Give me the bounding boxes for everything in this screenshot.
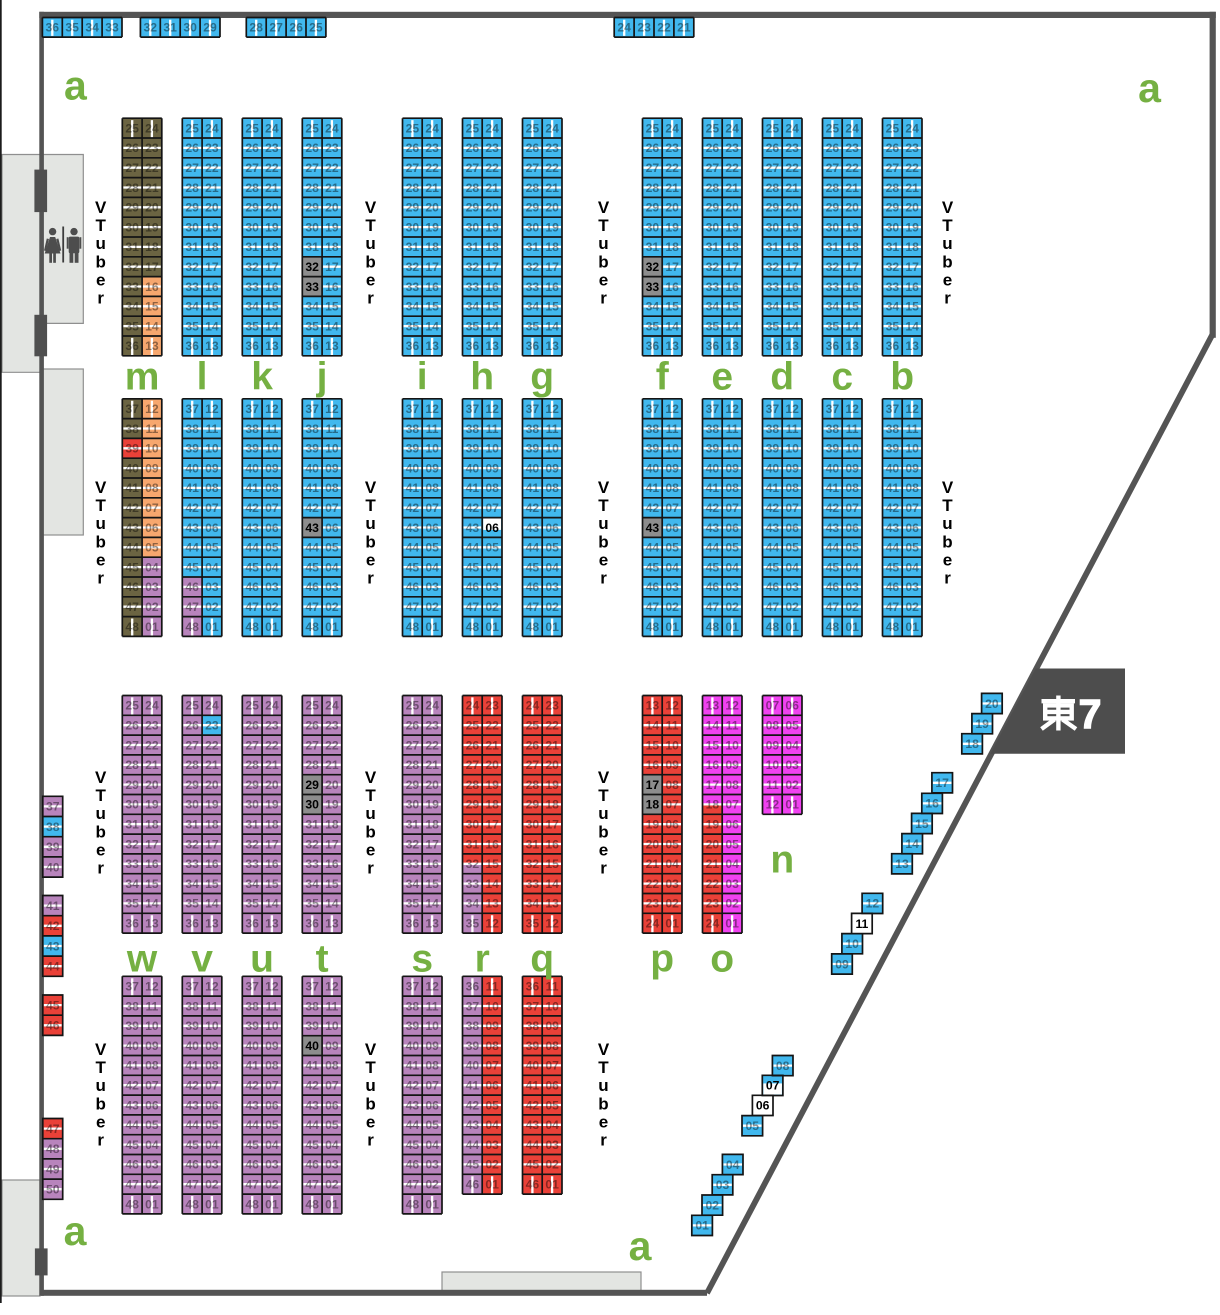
svg-text:19: 19 — [785, 220, 799, 234]
svg-text:25: 25 — [185, 121, 199, 135]
svg-text:28: 28 — [125, 758, 139, 772]
svg-text:32: 32 — [886, 260, 900, 274]
svg-text:14: 14 — [265, 897, 279, 911]
svg-text:22: 22 — [785, 161, 799, 175]
svg-text:33: 33 — [305, 280, 319, 294]
svg-text:20: 20 — [905, 201, 919, 215]
svg-text:06: 06 — [905, 521, 919, 535]
svg-text:16: 16 — [145, 280, 159, 294]
svg-text:37: 37 — [245, 980, 259, 994]
svg-text:24: 24 — [646, 917, 660, 931]
svg-text:28: 28 — [826, 181, 840, 195]
svg-text:20: 20 — [665, 201, 679, 215]
svg-text:04: 04 — [545, 560, 559, 574]
svg-text:06: 06 — [265, 1098, 279, 1112]
svg-text:r: r — [475, 937, 490, 980]
svg-text:43: 43 — [245, 1098, 259, 1112]
svg-text:V: V — [95, 1040, 107, 1059]
svg-text:13: 13 — [545, 339, 559, 353]
svg-text:02: 02 — [425, 1178, 439, 1192]
svg-text:24: 24 — [845, 121, 859, 135]
svg-text:44: 44 — [466, 541, 480, 555]
svg-text:47: 47 — [646, 600, 660, 614]
svg-text:09: 09 — [425, 461, 439, 475]
svg-text:45: 45 — [526, 560, 540, 574]
svg-text:V: V — [942, 478, 954, 497]
svg-text:31: 31 — [245, 240, 259, 254]
svg-text:12: 12 — [905, 402, 919, 416]
svg-text:44: 44 — [526, 1138, 540, 1152]
svg-text:19: 19 — [905, 220, 919, 234]
svg-text:35: 35 — [245, 897, 259, 911]
svg-text:44: 44 — [826, 541, 840, 555]
svg-text:48: 48 — [245, 620, 259, 634]
svg-text:09: 09 — [665, 461, 679, 475]
svg-text:28: 28 — [526, 778, 540, 792]
svg-text:42: 42 — [646, 501, 660, 515]
svg-text:13: 13 — [845, 339, 859, 353]
svg-text:25: 25 — [526, 121, 540, 135]
svg-text:19: 19 — [845, 220, 859, 234]
svg-text:48: 48 — [886, 620, 900, 634]
svg-text:30: 30 — [706, 220, 720, 234]
svg-text:u: u — [942, 514, 952, 533]
svg-text:38: 38 — [125, 999, 139, 1013]
svg-text:37: 37 — [305, 402, 319, 416]
svg-text:e: e — [96, 550, 105, 569]
svg-text:15: 15 — [485, 857, 499, 871]
svg-text:03: 03 — [665, 580, 679, 594]
svg-text:21: 21 — [265, 181, 279, 195]
svg-text:48: 48 — [185, 1197, 199, 1211]
svg-text:06: 06 — [725, 818, 739, 832]
svg-text:17: 17 — [425, 260, 439, 274]
svg-text:d: d — [770, 356, 794, 399]
svg-text:39: 39 — [646, 442, 660, 456]
svg-text:c: c — [831, 356, 853, 399]
svg-text:26: 26 — [305, 719, 319, 733]
svg-text:16: 16 — [205, 857, 219, 871]
svg-text:16: 16 — [485, 280, 499, 294]
svg-text:17: 17 — [325, 837, 339, 851]
svg-text:34: 34 — [185, 877, 199, 891]
svg-text:11: 11 — [906, 422, 919, 436]
svg-text:35: 35 — [185, 897, 199, 911]
svg-text:11: 11 — [145, 999, 158, 1013]
svg-text:T: T — [598, 786, 609, 805]
svg-text:23: 23 — [665, 141, 679, 155]
svg-text:05: 05 — [545, 541, 559, 555]
svg-text:06: 06 — [145, 521, 159, 535]
svg-text:28: 28 — [886, 181, 900, 195]
svg-text:23: 23 — [205, 719, 219, 733]
svg-text:u: u — [365, 514, 375, 533]
svg-text:01: 01 — [665, 620, 679, 634]
svg-text:17: 17 — [845, 260, 859, 274]
svg-text:33: 33 — [526, 280, 540, 294]
svg-text:21: 21 — [485, 738, 499, 752]
svg-text:42: 42 — [125, 501, 139, 515]
svg-text:32: 32 — [826, 260, 840, 274]
svg-text:48: 48 — [646, 620, 660, 634]
svg-text:24: 24 — [545, 121, 559, 135]
svg-text:43: 43 — [706, 521, 720, 535]
svg-text:34: 34 — [826, 300, 840, 314]
svg-text:01: 01 — [265, 1197, 279, 1211]
svg-text:13: 13 — [706, 699, 720, 713]
svg-text:43: 43 — [466, 1118, 480, 1132]
svg-text:02: 02 — [785, 778, 799, 792]
svg-text:42: 42 — [245, 501, 259, 515]
svg-text:46: 46 — [466, 1178, 480, 1192]
svg-text:07: 07 — [545, 501, 559, 515]
svg-text:e: e — [599, 1112, 608, 1131]
svg-text:40: 40 — [245, 1039, 259, 1053]
svg-text:05: 05 — [265, 541, 279, 555]
svg-text:09: 09 — [205, 461, 219, 475]
svg-text:40: 40 — [125, 1039, 139, 1053]
svg-text:42: 42 — [406, 501, 420, 515]
svg-text:20: 20 — [205, 201, 219, 215]
svg-text:40: 40 — [406, 1039, 420, 1053]
svg-text:02: 02 — [725, 600, 739, 614]
svg-text:45: 45 — [245, 1138, 259, 1152]
svg-text:04: 04 — [725, 560, 739, 574]
svg-text:r: r — [367, 289, 374, 308]
svg-text:11: 11 — [486, 980, 499, 994]
svg-text:12: 12 — [866, 897, 880, 911]
svg-text:V: V — [365, 198, 377, 217]
svg-text:06: 06 — [756, 1099, 770, 1113]
svg-text:26: 26 — [826, 141, 840, 155]
svg-text:34: 34 — [125, 300, 139, 314]
svg-text:41: 41 — [526, 481, 540, 495]
svg-text:18: 18 — [325, 240, 339, 254]
svg-text:24: 24 — [425, 699, 439, 713]
svg-text:08: 08 — [545, 481, 559, 495]
svg-text:37: 37 — [466, 402, 480, 416]
svg-text:24: 24 — [905, 121, 919, 135]
svg-text:05: 05 — [665, 541, 679, 555]
svg-text:29: 29 — [185, 778, 199, 792]
svg-text:35: 35 — [886, 319, 900, 333]
svg-text:42: 42 — [305, 1079, 319, 1093]
svg-text:11: 11 — [546, 980, 559, 994]
svg-text:22: 22 — [265, 161, 279, 175]
svg-text:28: 28 — [245, 758, 259, 772]
svg-text:48: 48 — [406, 1197, 420, 1211]
svg-text:09: 09 — [665, 758, 679, 772]
svg-text:45: 45 — [125, 560, 139, 574]
svg-text:28: 28 — [406, 758, 420, 772]
svg-text:25: 25 — [466, 719, 480, 733]
svg-text:09: 09 — [725, 758, 739, 772]
svg-text:27: 27 — [466, 161, 480, 175]
svg-text:17: 17 — [545, 818, 559, 832]
svg-text:07: 07 — [265, 501, 279, 515]
svg-text:05: 05 — [905, 541, 919, 555]
svg-text:46: 46 — [826, 580, 840, 594]
svg-text:23: 23 — [145, 719, 159, 733]
svg-text:26: 26 — [526, 738, 540, 752]
svg-text:a: a — [1138, 65, 1162, 111]
svg-text:07: 07 — [485, 501, 499, 515]
svg-text:25: 25 — [406, 121, 420, 135]
svg-text:29: 29 — [305, 201, 319, 215]
svg-text:47: 47 — [826, 600, 840, 614]
svg-text:23: 23 — [145, 141, 159, 155]
svg-text:27: 27 — [305, 161, 319, 175]
svg-text:19: 19 — [485, 778, 499, 792]
svg-text:11: 11 — [426, 422, 439, 436]
svg-text:05: 05 — [205, 541, 219, 555]
svg-text:28: 28 — [466, 778, 480, 792]
svg-text:23: 23 — [485, 699, 499, 713]
svg-text:16: 16 — [425, 857, 439, 871]
svg-text:26: 26 — [125, 719, 139, 733]
svg-text:21: 21 — [545, 181, 559, 195]
svg-text:46: 46 — [245, 1158, 259, 1172]
svg-text:39: 39 — [466, 442, 480, 456]
svg-text:26: 26 — [406, 719, 420, 733]
svg-text:30: 30 — [766, 220, 780, 234]
svg-text:26: 26 — [185, 719, 199, 733]
svg-text:43: 43 — [826, 521, 840, 535]
svg-text:V: V — [598, 1040, 610, 1059]
svg-text:36: 36 — [766, 339, 780, 353]
svg-text:04: 04 — [325, 560, 339, 574]
svg-text:05: 05 — [665, 837, 679, 851]
svg-text:21: 21 — [425, 181, 439, 195]
svg-text:01: 01 — [325, 620, 339, 634]
svg-text:34: 34 — [406, 300, 420, 314]
svg-text:31: 31 — [245, 818, 259, 832]
svg-text:06: 06 — [665, 521, 679, 535]
svg-text:41: 41 — [466, 481, 480, 495]
svg-text:17: 17 — [905, 260, 919, 274]
svg-text:11: 11 — [726, 719, 739, 733]
svg-text:46: 46 — [406, 1158, 420, 1172]
svg-text:39: 39 — [706, 442, 720, 456]
svg-text:06: 06 — [205, 1098, 219, 1112]
svg-text:r: r — [367, 569, 374, 588]
svg-text:44: 44 — [46, 960, 60, 974]
svg-text:04: 04 — [145, 1138, 159, 1152]
svg-text:14: 14 — [145, 897, 159, 911]
svg-text:05: 05 — [725, 541, 739, 555]
svg-text:21: 21 — [646, 857, 660, 871]
svg-text:V: V — [95, 478, 107, 497]
svg-text:15: 15 — [725, 300, 739, 314]
svg-text:40: 40 — [466, 1059, 480, 1073]
svg-text:01: 01 — [145, 1197, 159, 1211]
svg-text:24: 24 — [485, 121, 499, 135]
svg-text:06: 06 — [485, 521, 499, 535]
svg-text:36: 36 — [826, 339, 840, 353]
svg-text:15: 15 — [265, 300, 279, 314]
svg-text:19: 19 — [325, 798, 339, 812]
svg-text:10: 10 — [325, 442, 339, 456]
svg-text:34: 34 — [466, 897, 480, 911]
svg-text:05: 05 — [205, 1118, 219, 1132]
svg-text:36: 36 — [706, 339, 720, 353]
svg-text:37: 37 — [46, 800, 60, 814]
svg-text:36: 36 — [466, 339, 480, 353]
svg-text:18: 18 — [325, 818, 339, 832]
svg-text:34: 34 — [706, 300, 720, 314]
svg-text:18: 18 — [965, 737, 979, 751]
svg-text:20: 20 — [485, 758, 499, 772]
svg-text:42: 42 — [125, 1079, 139, 1093]
svg-text:01: 01 — [485, 1178, 499, 1192]
svg-text:r: r — [600, 289, 607, 308]
svg-text:48: 48 — [125, 620, 139, 634]
svg-text:44: 44 — [305, 1118, 319, 1132]
svg-text:04: 04 — [485, 1118, 499, 1132]
svg-text:43: 43 — [125, 521, 139, 535]
svg-text:o: o — [710, 937, 734, 980]
svg-text:30: 30 — [406, 798, 420, 812]
svg-text:e: e — [599, 270, 608, 289]
svg-text:20: 20 — [145, 201, 159, 215]
svg-text:36: 36 — [185, 917, 199, 931]
svg-text:22: 22 — [485, 161, 499, 175]
svg-text:43: 43 — [185, 1098, 199, 1112]
svg-text:09: 09 — [725, 461, 739, 475]
svg-text:28: 28 — [466, 181, 480, 195]
svg-text:12: 12 — [665, 402, 679, 416]
svg-text:23: 23 — [905, 141, 919, 155]
svg-text:27: 27 — [646, 161, 660, 175]
svg-text:18: 18 — [205, 818, 219, 832]
svg-text:e: e — [96, 840, 105, 859]
svg-text:36: 36 — [185, 339, 199, 353]
svg-text:47: 47 — [125, 600, 139, 614]
svg-text:14: 14 — [205, 897, 219, 911]
svg-text:11: 11 — [666, 719, 679, 733]
svg-text:v: v — [191, 937, 213, 980]
svg-text:30: 30 — [466, 220, 480, 234]
svg-text:32: 32 — [406, 260, 420, 274]
svg-text:38: 38 — [466, 422, 480, 436]
svg-text:49: 49 — [46, 1162, 60, 1176]
svg-text:V: V — [942, 198, 954, 217]
svg-text:25: 25 — [886, 121, 900, 135]
svg-text:04: 04 — [425, 560, 439, 574]
svg-text:b: b — [598, 532, 608, 551]
svg-text:26: 26 — [766, 141, 780, 155]
svg-text:07: 07 — [425, 501, 439, 515]
svg-text:03: 03 — [725, 580, 739, 594]
svg-text:22: 22 — [325, 161, 339, 175]
svg-text:27: 27 — [245, 161, 259, 175]
svg-text:07: 07 — [665, 798, 679, 812]
svg-text:28: 28 — [646, 181, 660, 195]
svg-text:17: 17 — [265, 260, 279, 274]
svg-text:11: 11 — [486, 422, 499, 436]
svg-text:20: 20 — [485, 201, 499, 215]
svg-text:14: 14 — [425, 897, 439, 911]
svg-text:46: 46 — [125, 1158, 139, 1172]
svg-text:18: 18 — [905, 240, 919, 254]
svg-text:43: 43 — [125, 1098, 139, 1112]
svg-text:22: 22 — [145, 738, 159, 752]
svg-text:u: u — [96, 1076, 106, 1095]
svg-text:35: 35 — [406, 897, 420, 911]
svg-text:41: 41 — [185, 1059, 199, 1073]
svg-text:a: a — [64, 63, 88, 109]
svg-text:35: 35 — [245, 319, 259, 333]
svg-text:30: 30 — [826, 220, 840, 234]
svg-text:28: 28 — [305, 758, 319, 772]
svg-text:44: 44 — [526, 541, 540, 555]
svg-text:42: 42 — [245, 1079, 259, 1093]
svg-text:u: u — [942, 234, 952, 253]
svg-text:13: 13 — [145, 917, 159, 931]
svg-text:14: 14 — [545, 877, 559, 891]
svg-text:24: 24 — [526, 699, 540, 713]
svg-text:42: 42 — [46, 919, 60, 933]
svg-text:36: 36 — [406, 339, 420, 353]
svg-text:45: 45 — [406, 560, 420, 574]
svg-text:r: r — [944, 289, 951, 308]
svg-text:39: 39 — [406, 442, 420, 456]
svg-text:39: 39 — [886, 442, 900, 456]
svg-text:43: 43 — [406, 1098, 420, 1112]
svg-text:38: 38 — [766, 422, 780, 436]
svg-text:b: b — [598, 822, 608, 841]
svg-text:24: 24 — [466, 699, 480, 713]
svg-text:33: 33 — [245, 280, 259, 294]
svg-text:29: 29 — [886, 201, 900, 215]
svg-text:27: 27 — [766, 161, 780, 175]
svg-text:31: 31 — [305, 240, 319, 254]
svg-text:03: 03 — [785, 580, 799, 594]
svg-text:17: 17 — [205, 260, 219, 274]
svg-text:39: 39 — [526, 442, 540, 456]
svg-text:43: 43 — [305, 521, 319, 535]
svg-text:35: 35 — [526, 917, 540, 931]
svg-text:05: 05 — [425, 1118, 439, 1132]
svg-text:u: u — [96, 234, 106, 253]
svg-text:23: 23 — [545, 141, 559, 155]
svg-text:06: 06 — [425, 521, 439, 535]
svg-text:41: 41 — [245, 1059, 259, 1073]
svg-text:31: 31 — [406, 818, 420, 832]
svg-text:30: 30 — [526, 818, 540, 832]
svg-text:40: 40 — [646, 461, 660, 475]
svg-text:43: 43 — [886, 521, 900, 535]
svg-text:40: 40 — [305, 1039, 319, 1053]
svg-text:18: 18 — [785, 240, 799, 254]
svg-text:42: 42 — [466, 501, 480, 515]
svg-text:02: 02 — [205, 1178, 219, 1192]
svg-text:j: j — [316, 356, 328, 399]
svg-text:45: 45 — [466, 560, 480, 574]
svg-text:06: 06 — [725, 521, 739, 535]
svg-text:h: h — [470, 356, 494, 399]
svg-text:04: 04 — [545, 1118, 559, 1132]
svg-text:12: 12 — [145, 980, 159, 994]
svg-text:31: 31 — [466, 837, 480, 851]
svg-text:30: 30 — [245, 798, 259, 812]
svg-text:37: 37 — [305, 980, 319, 994]
svg-text:43: 43 — [46, 939, 60, 953]
svg-text:15: 15 — [845, 300, 859, 314]
svg-text:T: T — [942, 216, 953, 235]
svg-text:22: 22 — [425, 161, 439, 175]
svg-text:44: 44 — [406, 1118, 420, 1132]
